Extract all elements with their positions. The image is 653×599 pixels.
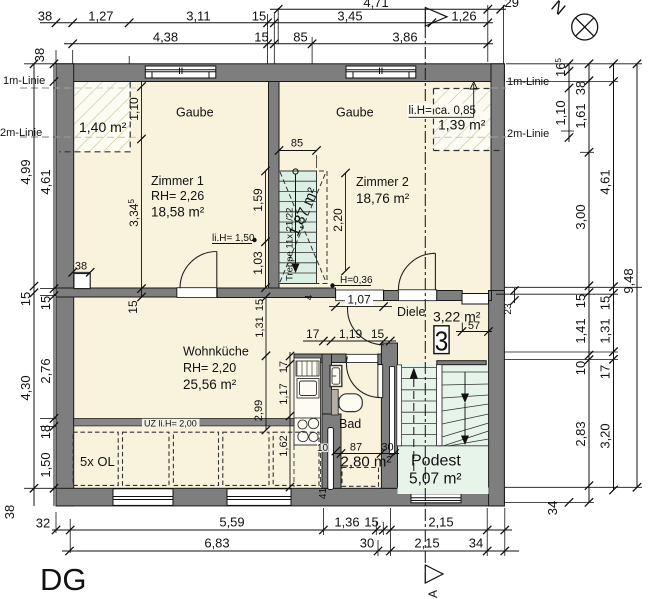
svg-text:38: 38 [32,48,47,62]
svg-text:A: A [426,590,440,598]
svg-text:5x OL: 5x OL [80,454,115,469]
svg-text:2m-Linie: 2m-Linie [0,127,42,139]
svg-text:29: 29 [505,0,519,10]
svg-text:34: 34 [545,501,560,515]
svg-text:6,83: 6,83 [204,536,229,551]
svg-text:Gaube: Gaube [336,106,374,120]
svg-text:38: 38 [38,8,52,23]
svg-text:15: 15 [126,300,140,314]
svg-text:38: 38 [2,505,17,519]
svg-text:15: 15 [254,299,266,311]
svg-text:3,11: 3,11 [186,8,210,23]
svg-text:15: 15 [371,327,385,341]
svg-text:1,31: 1,31 [254,316,266,337]
svg-text:DG: DG [40,562,87,597]
svg-text:85: 85 [293,29,307,44]
svg-text:5,59: 5,59 [219,515,244,530]
svg-text:15: 15 [254,29,268,44]
svg-text:2,15: 2,15 [428,515,453,530]
svg-text:15: 15 [252,8,266,23]
svg-text:2,83: 2,83 [573,421,588,446]
svg-text:4,30: 4,30 [18,375,33,400]
svg-text:1m-Linie: 1m-Linie [3,75,45,87]
svg-text:1,59: 1,59 [251,188,265,212]
svg-text:Bad: Bad [339,417,361,431]
svg-text:1,07: 1,07 [347,293,371,307]
svg-text:1,10: 1,10 [553,100,568,125]
svg-text:1,40 m²: 1,40 m² [79,119,127,135]
svg-text:3,00: 3,00 [573,204,588,229]
svg-text:1,10: 1,10 [127,97,141,121]
svg-text:3,45: 3,45 [337,8,362,23]
svg-text:1,19: 1,19 [339,327,363,341]
svg-text:17: 17 [306,327,320,341]
svg-text:1,62: 1,62 [278,435,290,456]
svg-text:17: 17 [598,365,613,379]
svg-text:3,86: 3,86 [392,29,417,44]
svg-text:30: 30 [360,536,374,551]
svg-text:17: 17 [278,361,290,373]
svg-text:4: 4 [304,294,315,300]
svg-text:1,31: 1,31 [598,318,613,343]
svg-text:30: 30 [381,442,393,454]
svg-text:1m-Linie: 1m-Linie [507,76,549,88]
svg-text:85: 85 [291,138,303,150]
svg-text:2m-Linie: 2m-Linie [507,128,549,140]
svg-text:9,48: 9,48 [621,268,636,293]
svg-text:1,03: 1,03 [251,251,265,275]
svg-text:H=0,36: H=0,36 [340,275,373,286]
svg-text:1,17: 1,17 [278,383,290,404]
svg-text:32: 32 [36,516,50,531]
svg-text:3,20: 3,20 [598,423,613,448]
svg-text:4,71: 4,71 [363,0,388,10]
svg-text:2,15: 2,15 [414,536,439,551]
svg-text:Gaube: Gaube [176,106,214,120]
svg-text:38: 38 [75,261,87,273]
svg-text:34: 34 [469,536,483,551]
svg-text:li.H= 1,50: li.H= 1,50 [212,233,255,244]
svg-text:li.H= ca. 0,85: li.H= ca. 0,85 [409,105,476,117]
svg-text:1,61: 1,61 [573,103,588,128]
svg-text:10: 10 [317,443,329,454]
svg-text:RH= 2,26: RH= 2,26 [151,189,204,203]
svg-text:1,41: 1,41 [573,318,588,343]
svg-text:2,99: 2,99 [253,400,265,421]
svg-text:2,20: 2,20 [331,208,345,232]
svg-text:3: 3 [435,326,449,357]
svg-text:Diele: Diele [397,305,426,319]
svg-text:UZ li.H= 2,00: UZ li.H= 2,00 [144,418,197,428]
svg-text:38: 38 [573,81,588,95]
svg-text:15: 15 [573,294,588,308]
svg-text:Zimmer 1: Zimmer 1 [151,174,204,188]
svg-text:87: 87 [350,442,362,454]
svg-text:4,99: 4,99 [18,159,33,184]
svg-text:23: 23 [503,303,514,315]
svg-text:Podest: Podest [411,453,461,470]
svg-text:1,27: 1,27 [88,8,113,23]
svg-text:15: 15 [598,296,613,310]
svg-text:1,36: 1,36 [334,515,359,530]
svg-text:4,61: 4,61 [38,169,53,194]
svg-text:18,58 m²: 18,58 m² [151,205,205,220]
svg-text:18: 18 [38,425,53,439]
svg-text:41: 41 [318,488,329,500]
svg-text:1,26: 1,26 [451,8,476,23]
svg-text:Wohnküche: Wohnküche [183,345,249,359]
svg-text:1,50: 1,50 [38,452,53,477]
svg-text:4,61: 4,61 [598,169,613,194]
svg-text:25,56 m²: 25,56 m² [183,377,237,392]
svg-text:2,76: 2,76 [38,358,53,383]
svg-text:15: 15 [38,296,53,310]
svg-text:4,38: 4,38 [153,29,178,44]
svg-text:57: 57 [468,320,480,332]
svg-text:10: 10 [573,361,588,375]
svg-text:Zimmer 2: Zimmer 2 [356,175,409,189]
svg-text:5,07 m²: 5,07 m² [409,471,462,488]
svg-text:RH= 2,20: RH= 2,20 [183,361,236,375]
svg-text:18,76 m²: 18,76 m² [356,191,410,206]
svg-text:15: 15 [18,292,33,306]
